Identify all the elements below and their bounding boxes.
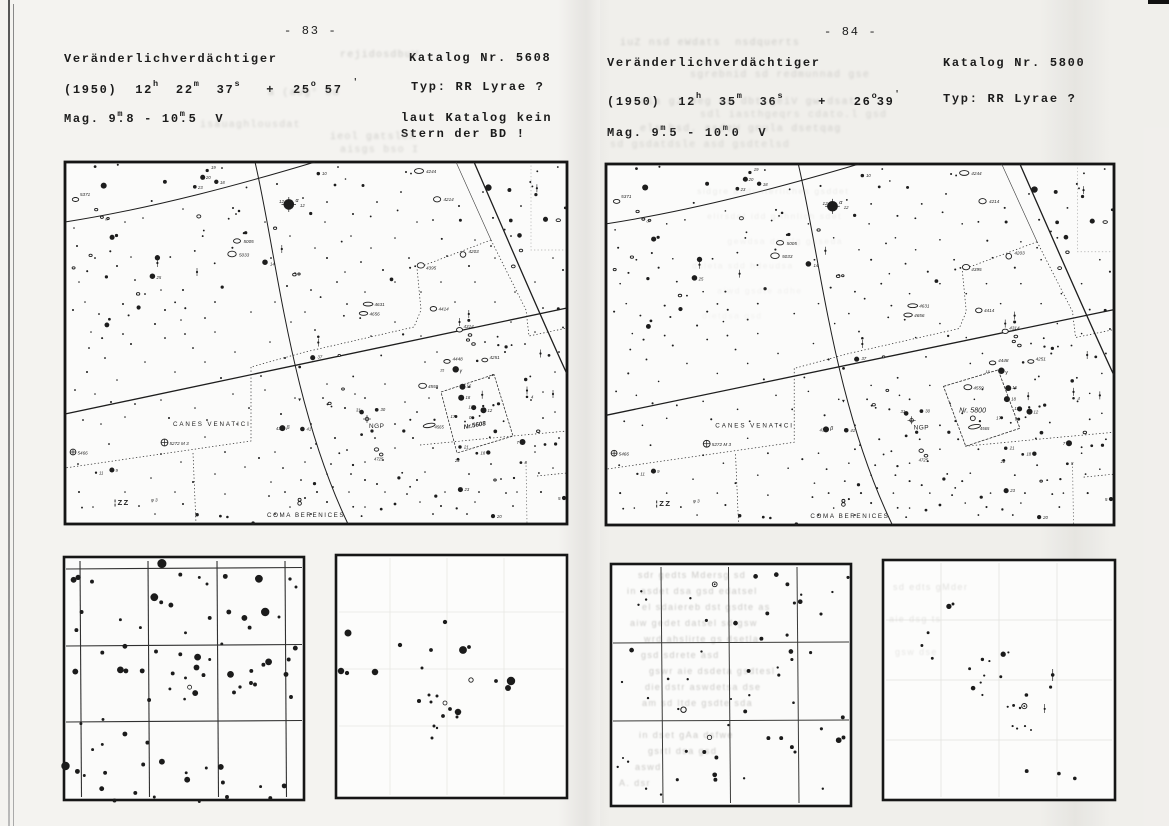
svg-text:gewdsa dstelg ghseda: gewdsa dstelg ghseda <box>727 236 843 246</box>
svg-text:20: 20 <box>496 514 502 519</box>
svg-text:γ: γ <box>460 369 463 375</box>
svg-text:12: 12 <box>279 199 285 204</box>
svg-text:sd edts gMder: sd edts gMder <box>893 582 968 592</box>
svg-text:4656: 4656 <box>370 312 381 317</box>
svg-text:13: 13 <box>469 405 474 410</box>
svg-text:4203: 4203 <box>469 249 480 254</box>
svg-text:22: 22 <box>454 458 460 463</box>
svg-text:4565: 4565 <box>435 425 445 430</box>
svg-text:4448: 4448 <box>453 357 464 362</box>
svg-text:in dset gAa dsfwe: in dset gAa dsfwe <box>639 730 734 740</box>
svg-text:β: β <box>286 425 290 431</box>
svg-text:aswd: aswd <box>635 762 662 772</box>
svg-text:4214: 4214 <box>444 197 455 202</box>
svg-text:18: 18 <box>466 395 471 400</box>
svg-text:43: 43 <box>276 426 281 431</box>
svg-text:4631: 4631 <box>375 302 386 307</box>
svg-text:A. dsr: A. dsr <box>619 778 651 788</box>
svg-text:aiw gedet datsel sd gsw: aiw gedet datsel sd gsw <box>630 618 758 628</box>
svg-text:16: 16 <box>467 384 472 389</box>
svg-text:NGP: NGP <box>369 423 384 430</box>
svg-text:in asdet dsa gsd edatsel: in asdet dsa gsd edatsel <box>627 586 758 596</box>
svg-text:4395: 4395 <box>426 266 437 271</box>
svg-text:12: 12 <box>300 203 305 208</box>
svg-text:4251: 4251 <box>490 355 501 360</box>
svg-text:4725: 4725 <box>374 457 384 462</box>
svg-text:17: 17 <box>451 414 456 419</box>
svg-text:18: 18 <box>481 451 486 456</box>
svg-text:14: 14 <box>270 262 275 267</box>
svg-text:4244: 4244 <box>426 169 437 174</box>
svg-text:gsw dse: gsw dse <box>895 647 938 657</box>
svg-text:am sd ltde gsdte sda: am sd ltde gsdte sda <box>642 698 753 708</box>
svg-text:37: 37 <box>318 355 323 360</box>
svg-text:21: 21 <box>463 445 469 450</box>
svg-text:5272 M 3: 5272 M 3 <box>170 441 190 446</box>
svg-text:23: 23 <box>464 487 470 492</box>
svg-text:5033: 5033 <box>239 253 250 258</box>
svg-text:φ 3: φ 3 <box>151 498 158 503</box>
svg-text:gsd sdrete asd: gsd sdrete asd <box>641 650 720 660</box>
svg-text:30: 30 <box>381 407 386 412</box>
svg-text:19: 19 <box>211 165 216 170</box>
svg-text:5466: 5466 <box>78 451 89 456</box>
svg-text:10: 10 <box>322 171 327 176</box>
svg-text:gsrtl dsa gsd: gsrtl dsa gsd <box>648 746 717 756</box>
svg-text:sidgre ahdunterliches gsddet: sidgre ahdunterliches gsddet <box>697 186 849 196</box>
svg-text:dsleta sdd hdeudsa: dsleta sdd hdeudsa <box>692 261 794 271</box>
svg-text:sdr gedts Mdersg sd: sdr gedts Mdersg sd <box>638 570 746 580</box>
svg-text:5005: 5005 <box>244 239 255 244</box>
svg-text:5371: 5371 <box>80 192 91 197</box>
svg-text:elirsdet idd gAhnlich sdet: elirsdet idd gAhnlich sdet <box>707 211 842 221</box>
svg-text:aiwd gsdte adhe: aiwd gsdte adhe <box>717 286 802 296</box>
svg-text:4314: 4314 <box>464 324 475 329</box>
svg-text:gswr aie dsdeta gsdtesl: gswr aie dsdeta gsdtesl <box>649 666 775 676</box>
svg-text:5: 5 <box>558 496 561 501</box>
svg-text:COMA BERENICES: COMA BERENICES <box>267 512 345 519</box>
svg-text:25: 25 <box>156 275 162 280</box>
svg-text:18: 18 <box>220 180 225 185</box>
svg-text:dietdsa gsd: dietdsa gsd <box>702 311 763 321</box>
svg-text:CANES VENATICI: CANES VENATICI <box>173 421 251 428</box>
svg-text:12: 12 <box>488 408 493 413</box>
svg-text:¦ZZ: ¦ZZ <box>114 498 130 507</box>
svg-text:aie dsg ts: aie dsg ts <box>889 614 942 624</box>
svg-text:11: 11 <box>99 471 103 476</box>
svg-text:31: 31 <box>356 408 361 413</box>
svg-text:4414: 4414 <box>439 307 450 312</box>
svg-text:4559: 4559 <box>428 384 439 389</box>
svg-text:23: 23 <box>197 185 203 190</box>
svg-text:20: 20 <box>205 175 211 180</box>
svg-text:Nr. 5800: Nr. 5800 <box>959 407 986 414</box>
svg-text:41: 41 <box>307 427 312 432</box>
